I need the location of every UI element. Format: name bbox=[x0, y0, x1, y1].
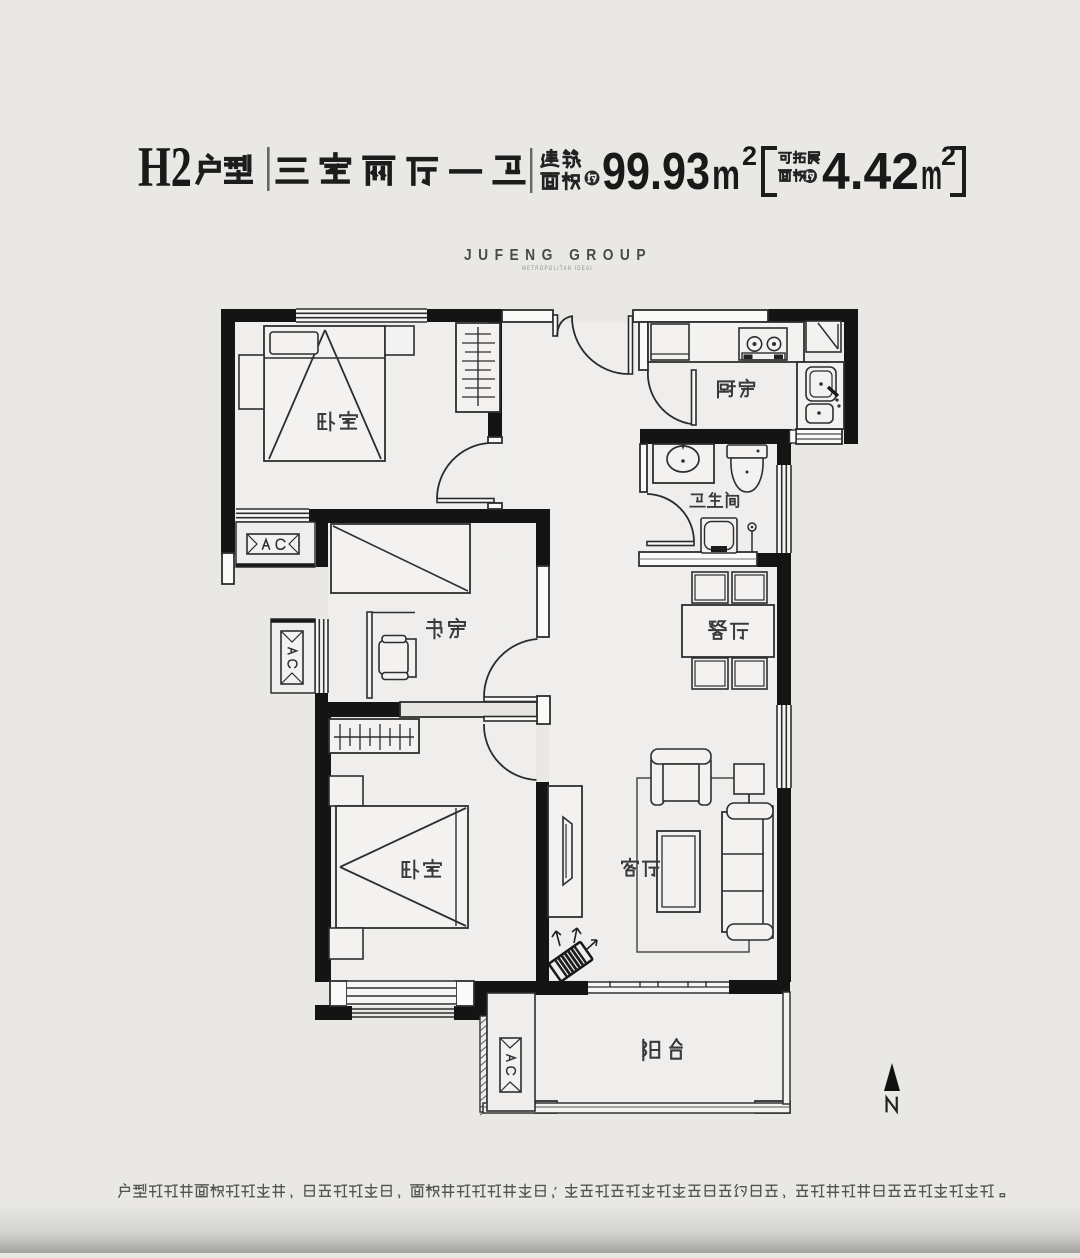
svg-text:99.93: 99.93 bbox=[602, 143, 710, 201]
svg-text:2: 2 bbox=[941, 141, 956, 171]
svg-text:JUFENG GROUP: JUFENG GROUP bbox=[464, 247, 652, 264]
svg-text:m: m bbox=[921, 151, 942, 198]
svg-text:METROPOLITAN IDEAL: METROPOLITAN IDEAL bbox=[522, 265, 594, 272]
svg-text:4.42: 4.42 bbox=[822, 143, 919, 201]
svg-text:m: m bbox=[712, 151, 740, 198]
svg-text:H2: H2 bbox=[138, 135, 192, 199]
svg-text:2: 2 bbox=[742, 141, 757, 171]
